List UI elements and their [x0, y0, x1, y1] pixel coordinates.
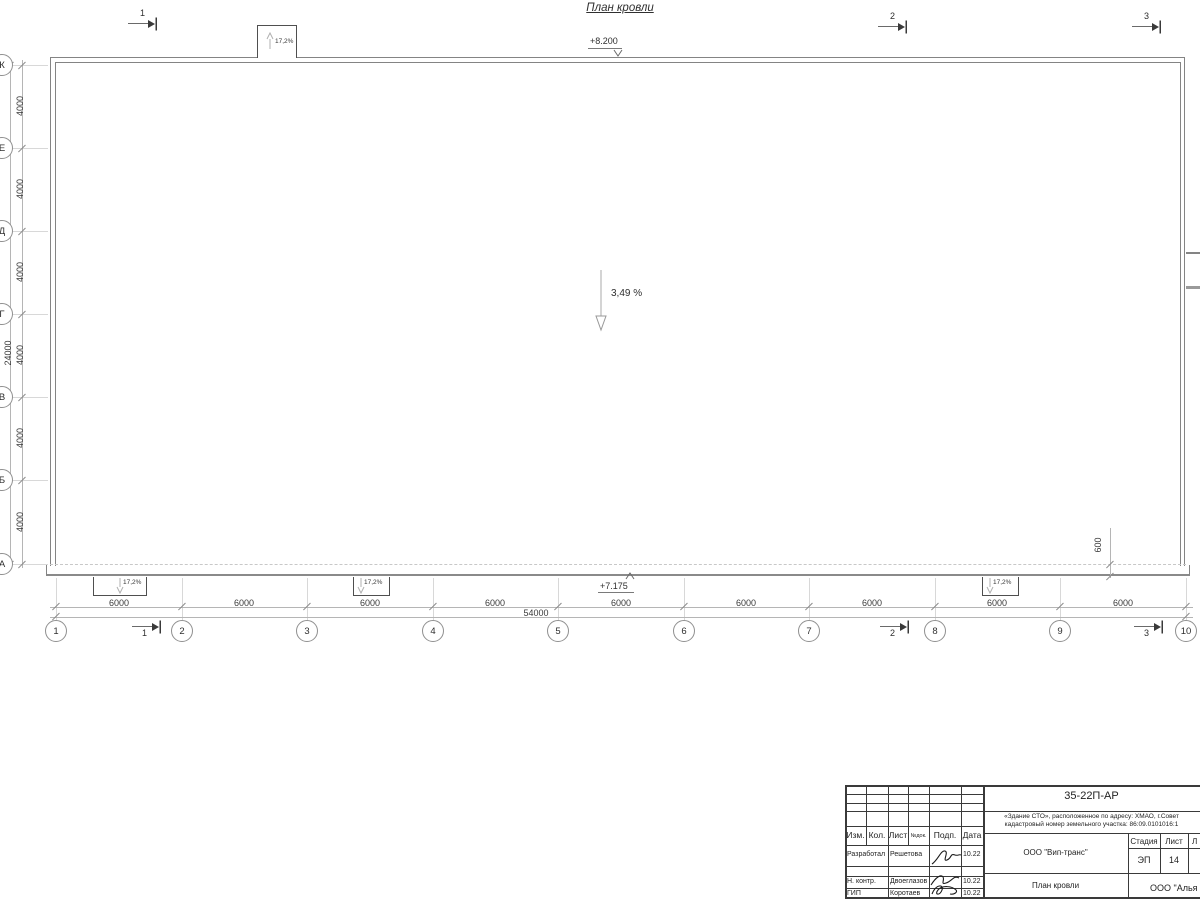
dim-label-bay: 6000	[977, 598, 1017, 608]
design-org: ООО "Вип-транс"	[983, 848, 1128, 857]
row-date: 10.22	[963, 890, 981, 897]
axis-bubble-col: 3	[296, 620, 318, 642]
project-description-line2: кадастровый номер земельного участка: 86…	[983, 821, 1200, 828]
column-header-kol: Кол.	[866, 830, 888, 840]
extension-line	[684, 578, 685, 620]
dim-label-bay: 6000	[1103, 598, 1143, 608]
section-mark-label: 1	[140, 8, 145, 18]
axis-bubble-col: 7	[798, 620, 820, 642]
roof-slope-label: 3,49 %	[611, 288, 642, 299]
titleblock-line	[983, 873, 1200, 874]
canopy-bottom-2: 17,2%	[353, 577, 390, 596]
roof-slope-arrow-icon	[594, 270, 608, 332]
section-mark-line	[1134, 626, 1156, 627]
axis-bubble-row: А	[0, 553, 13, 575]
extension-line	[1060, 578, 1061, 620]
dim-label-bay: 6000	[224, 598, 264, 608]
right-canopy-line	[1186, 286, 1200, 289]
dim-label-bay: 6000	[726, 598, 766, 608]
drawing-sheet: План кровли 1 2 3 +8.200	[0, 0, 1200, 900]
dim-line	[50, 617, 1193, 618]
extension-line	[558, 578, 559, 620]
section-arrow-icon	[1152, 20, 1163, 34]
extension-line	[307, 578, 308, 620]
section-arrow-icon	[152, 620, 163, 634]
axis-bubble-row: К	[0, 54, 13, 76]
canopy-slope-label: 17,2%	[123, 579, 141, 586]
sheet-value: 14	[1160, 855, 1188, 865]
canopy-slope-label: 17,2%	[364, 579, 382, 586]
dim-label-bay: 4000	[15, 252, 25, 292]
elevation-value: +7.175	[600, 581, 628, 591]
sheet-label: Лист	[1160, 837, 1188, 846]
contractor-org: ООО "Алья	[1150, 883, 1198, 893]
extension-line	[182, 578, 183, 620]
row-role: ГИП	[847, 890, 861, 897]
titleblock-line	[845, 811, 1200, 812]
axis-bubble-col: 1	[45, 620, 67, 642]
column-header-data: Дата	[961, 830, 983, 840]
dim-label-bay: 6000	[852, 598, 892, 608]
dim-label-bay: 6000	[350, 598, 390, 608]
section-mark-label: 2	[890, 11, 895, 21]
extension-line	[935, 578, 936, 620]
row-role: Н. контр.	[847, 878, 876, 885]
dim-label-bay: 4000	[15, 502, 25, 542]
extension-line	[809, 578, 810, 620]
dim-label-overhang: 600	[1093, 530, 1103, 560]
axis-bubble-col: 9	[1049, 620, 1071, 642]
dim-line	[1110, 528, 1111, 578]
elevation-arrow-up-icon	[624, 572, 636, 581]
axis-bubble-col: 8	[924, 620, 946, 642]
axis-bubble-row: Д	[0, 220, 13, 242]
canopy-slope-label: 17,2%	[275, 38, 293, 45]
dim-label-bay: 4000	[15, 418, 25, 458]
sheet-title: План кровли	[983, 881, 1128, 890]
axis-bubble-col: 6	[673, 620, 695, 642]
canopy-top: 17,2%	[257, 25, 297, 58]
slope-arrow-up-icon	[266, 32, 274, 50]
section-mark-label: 2	[890, 628, 895, 638]
section-mark-line	[1132, 26, 1154, 27]
titleblock-line	[983, 833, 1200, 834]
dim-label-bay: 6000	[99, 598, 139, 608]
canopy-slope-label: 17,2%	[993, 579, 1011, 586]
row-role: Разработал	[847, 851, 885, 858]
dim-label-total: 54000	[516, 608, 556, 618]
axis-bubble-row: Б	[0, 469, 13, 491]
section-mark-line	[128, 23, 150, 24]
section-mark-line	[132, 626, 154, 627]
row-name: Решетова	[890, 851, 922, 858]
stage-value: ЭП	[1128, 855, 1160, 865]
elevation-underline	[598, 592, 634, 593]
row-name: Двоеглазов	[890, 878, 927, 885]
section-arrow-icon	[898, 20, 909, 34]
titleblock-line	[888, 785, 889, 898]
axis-bubble-row: Г	[0, 303, 13, 325]
titleblock-line	[845, 888, 983, 889]
roof-eave-slab	[46, 565, 1190, 576]
axis-bubble-col: 4	[422, 620, 444, 642]
section-mark-label: 1	[142, 628, 147, 638]
signature	[928, 846, 962, 867]
axis-bubble-col: 2	[171, 620, 193, 642]
titleblock-line	[845, 785, 1200, 787]
row-name: Коротаев	[890, 890, 920, 897]
column-header-izm: Изм.	[845, 830, 866, 840]
axis-bubble-row: Е	[0, 137, 13, 159]
signature	[928, 882, 962, 898]
section-mark-label: 3	[1144, 628, 1149, 638]
section-arrow-icon	[148, 17, 159, 31]
section-arrow-icon	[1154, 620, 1165, 634]
dim-label-bay: 4000	[15, 335, 25, 375]
section-mark-label: 3	[1144, 11, 1149, 21]
axis-bubble-col: 5	[547, 620, 569, 642]
row-date: 10.22	[963, 878, 981, 885]
project-description-line1: «Здание СТО», расположенное по адресу: Х…	[983, 813, 1200, 820]
section-mark-line	[878, 26, 900, 27]
titleblock-line	[845, 897, 1200, 899]
axis-bubble-row: В	[0, 386, 13, 408]
dim-label-total: 24000	[3, 333, 13, 373]
right-canopy-line	[1186, 252, 1200, 254]
elevation-value: +8.200	[590, 36, 618, 46]
section-mark-line	[880, 626, 902, 627]
drawing-title: План кровли	[540, 2, 700, 14]
roof-outline-inner	[55, 62, 1181, 566]
dim-label-bay: 4000	[15, 169, 25, 209]
canopy-bottom-1: 17,2%	[93, 577, 147, 596]
titleblock-line	[1188, 833, 1189, 873]
stage-label: Стадия	[1128, 837, 1160, 846]
titleblock-line	[845, 845, 983, 846]
dim-label-bay: 6000	[601, 598, 641, 608]
document-code: 35-22П-АР	[983, 790, 1200, 802]
column-header-ndok: №док.	[908, 833, 929, 839]
titleblock-line	[845, 876, 983, 877]
axis-bubble-col: 10	[1175, 620, 1197, 642]
titleblock-line	[1128, 848, 1200, 849]
extension-line	[433, 578, 434, 620]
dim-label-bay: 6000	[475, 598, 515, 608]
sheets-label: Л	[1192, 837, 1197, 846]
titleblock-line	[845, 866, 983, 867]
section-arrow-icon	[900, 620, 911, 634]
column-header-list: Лист	[888, 830, 908, 840]
row-date: 10.22	[963, 851, 981, 858]
column-header-podp: Подп.	[929, 830, 961, 840]
dim-label-bay: 4000	[15, 86, 25, 126]
canopy-bottom-3: 17,2%	[982, 577, 1019, 596]
